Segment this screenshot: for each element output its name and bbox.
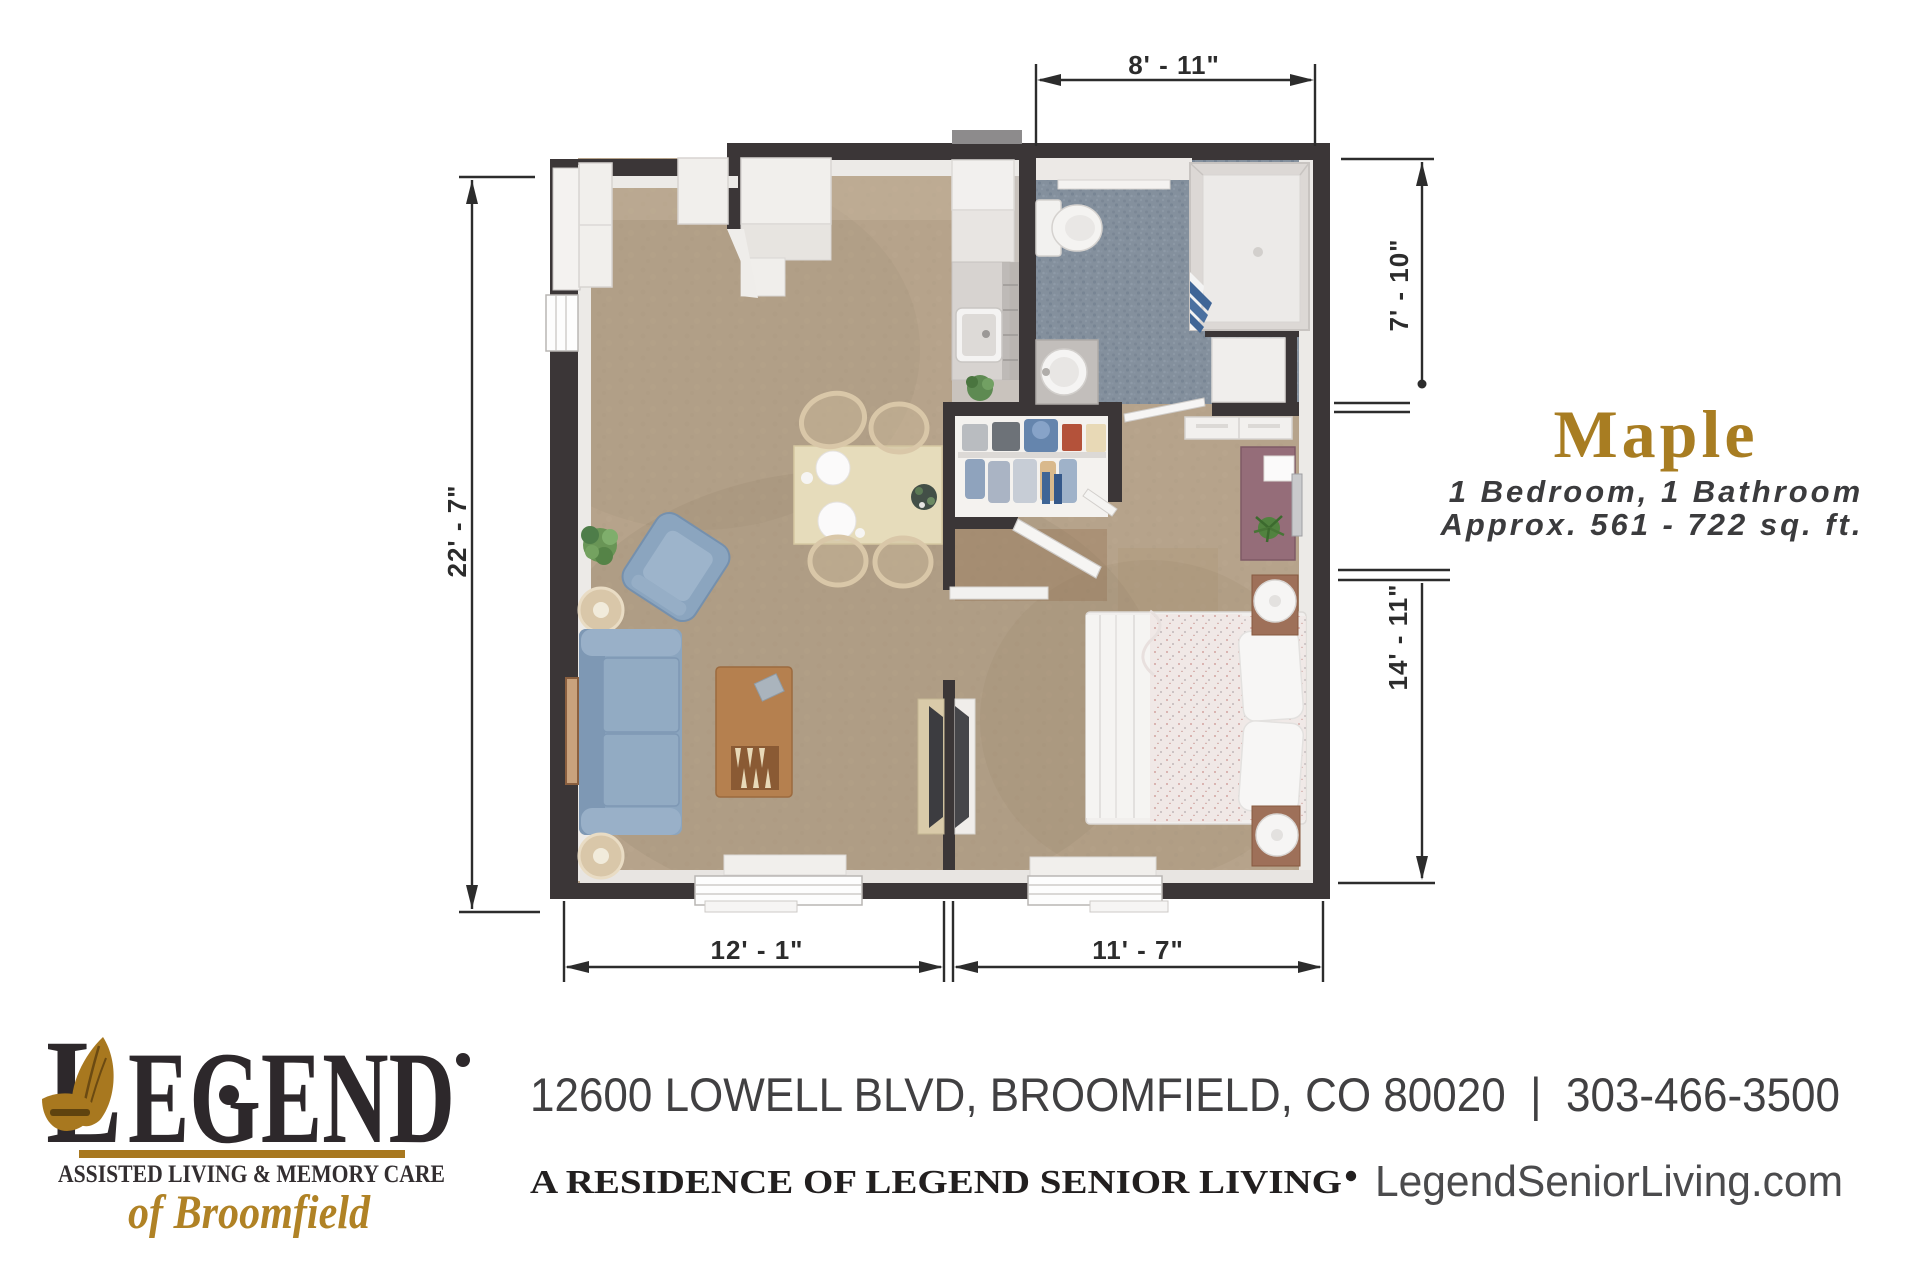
svg-text:7' - 10": 7' - 10" bbox=[1384, 239, 1414, 332]
svg-text:ASSISTED LIVING & MEMORY CARE: ASSISTED LIVING & MEMORY CARE bbox=[58, 1161, 445, 1188]
svg-text:22' - 7": 22' - 7" bbox=[442, 485, 472, 578]
svg-text:14' - 11": 14' - 11" bbox=[1383, 583, 1413, 690]
svg-text:12600 LOWELL BLVD, BROOMFIELD,: 12600 LOWELL BLVD, BROOMFIELD, CO 80020 … bbox=[530, 1068, 1840, 1121]
svg-text:1 Bedroom, 1 Bathroom: 1 Bedroom, 1 Bathroom bbox=[1449, 474, 1863, 509]
svg-text:A RESIDENCE OF LEGEND SENIOR L: A RESIDENCE OF LEGEND SENIOR LIVING bbox=[530, 1164, 1342, 1201]
svg-text:Approx. 561 - 722 sq. ft.: Approx. 561 - 722 sq. ft. bbox=[1440, 507, 1864, 542]
svg-text:8' - 11": 8' - 11" bbox=[1128, 50, 1220, 80]
svg-text:of Broomfield: of Broomfield bbox=[128, 1186, 371, 1239]
svg-text:11' - 7": 11' - 7" bbox=[1092, 935, 1184, 965]
svg-text:Maple: Maple bbox=[1553, 396, 1758, 472]
svg-text:LegendSeniorLiving.com: LegendSeniorLiving.com bbox=[1375, 1157, 1843, 1206]
svg-text:12' - 1": 12' - 1" bbox=[711, 935, 804, 965]
svg-text:EGEND: EGEND bbox=[128, 1024, 455, 1171]
